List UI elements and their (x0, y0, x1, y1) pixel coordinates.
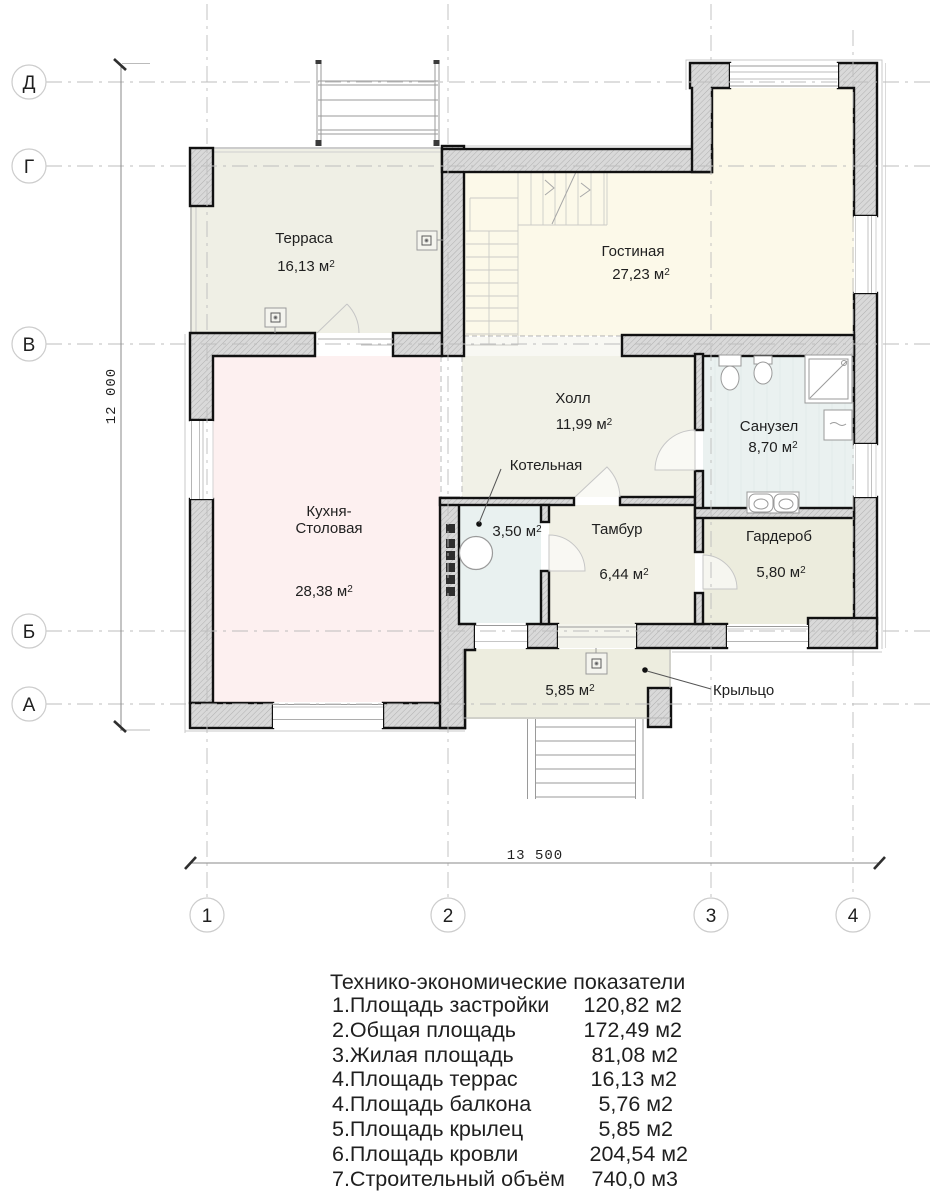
svg-text:13 500: 13 500 (507, 848, 563, 864)
svg-text:Котельная: Котельная (510, 457, 583, 474)
svg-text:204,54 м2: 204,54 м2 (590, 1142, 688, 1166)
svg-text:Холл: Холл (555, 390, 590, 407)
svg-text:А: А (23, 695, 36, 716)
svg-text:7.Строительный объём: 7.Строительный объём (332, 1167, 565, 1191)
svg-text:Крыльцо: Крыльцо (713, 682, 774, 699)
svg-text:28,38 м2: 28,38 м2 (295, 583, 353, 600)
svg-text:Санузел: Санузел (740, 418, 798, 435)
svg-text:3,50 м2: 3,50 м2 (492, 523, 542, 540)
svg-text:Г: Г (24, 157, 34, 178)
svg-text:2: 2 (443, 906, 454, 927)
svg-text:3.Жилая площадь: 3.Жилая площадь (332, 1043, 514, 1067)
svg-text:4.Площадь балкона: 4.Площадь балкона (332, 1092, 531, 1116)
svg-text:4: 4 (848, 906, 859, 927)
svg-text:120,82 м2: 120,82 м2 (584, 993, 682, 1017)
svg-text:740,0 м3: 740,0 м3 (591, 1167, 678, 1191)
svg-text:172,49 м2: 172,49 м2 (584, 1018, 682, 1042)
svg-text:5,76 м2: 5,76 м2 (598, 1092, 673, 1116)
svg-text:2.Общая площадь: 2.Общая площадь (332, 1018, 516, 1042)
svg-text:16,13 м2: 16,13 м2 (277, 258, 335, 275)
svg-text:Терраса: Терраса (275, 230, 333, 247)
svg-text:5,85 м2: 5,85 м2 (598, 1117, 673, 1141)
svg-text:Кухня-: Кухня- (306, 503, 351, 520)
svg-text:Технико-экономические показате: Технико-экономические показатели (330, 970, 685, 994)
svg-text:Тамбур: Тамбур (592, 521, 643, 538)
svg-text:16,13 м2: 16,13 м2 (590, 1067, 677, 1091)
svg-text:Гардероб: Гардероб (746, 528, 812, 545)
svg-text:Гостиная: Гостиная (602, 243, 665, 260)
svg-text:11,99 м2: 11,99 м2 (556, 416, 613, 433)
svg-text:Столовая: Столовая (295, 520, 362, 537)
svg-text:5,80 м2: 5,80 м2 (756, 564, 806, 581)
svg-text:Б: Б (23, 622, 35, 643)
svg-text:8,70 м2: 8,70 м2 (748, 439, 798, 456)
svg-text:1: 1 (202, 906, 213, 927)
svg-text:В: В (23, 335, 36, 356)
svg-text:6.Площадь кровли: 6.Площадь кровли (332, 1142, 518, 1166)
svg-text:3: 3 (706, 906, 717, 927)
svg-text:4.Площадь террас: 4.Площадь террас (332, 1067, 518, 1091)
svg-text:81,08 м2: 81,08 м2 (591, 1043, 678, 1067)
svg-text:27,23 м2: 27,23 м2 (612, 266, 670, 283)
svg-text:1.Площадь застройки: 1.Площадь застройки (332, 993, 549, 1017)
svg-text:5,85 м2: 5,85 м2 (545, 682, 595, 699)
svg-text:6,44 м2: 6,44 м2 (599, 566, 649, 583)
svg-text:5.Площадь крылец: 5.Площадь крылец (332, 1117, 523, 1141)
svg-text:12 000: 12 000 (104, 368, 120, 424)
svg-text:Д: Д (23, 73, 36, 94)
